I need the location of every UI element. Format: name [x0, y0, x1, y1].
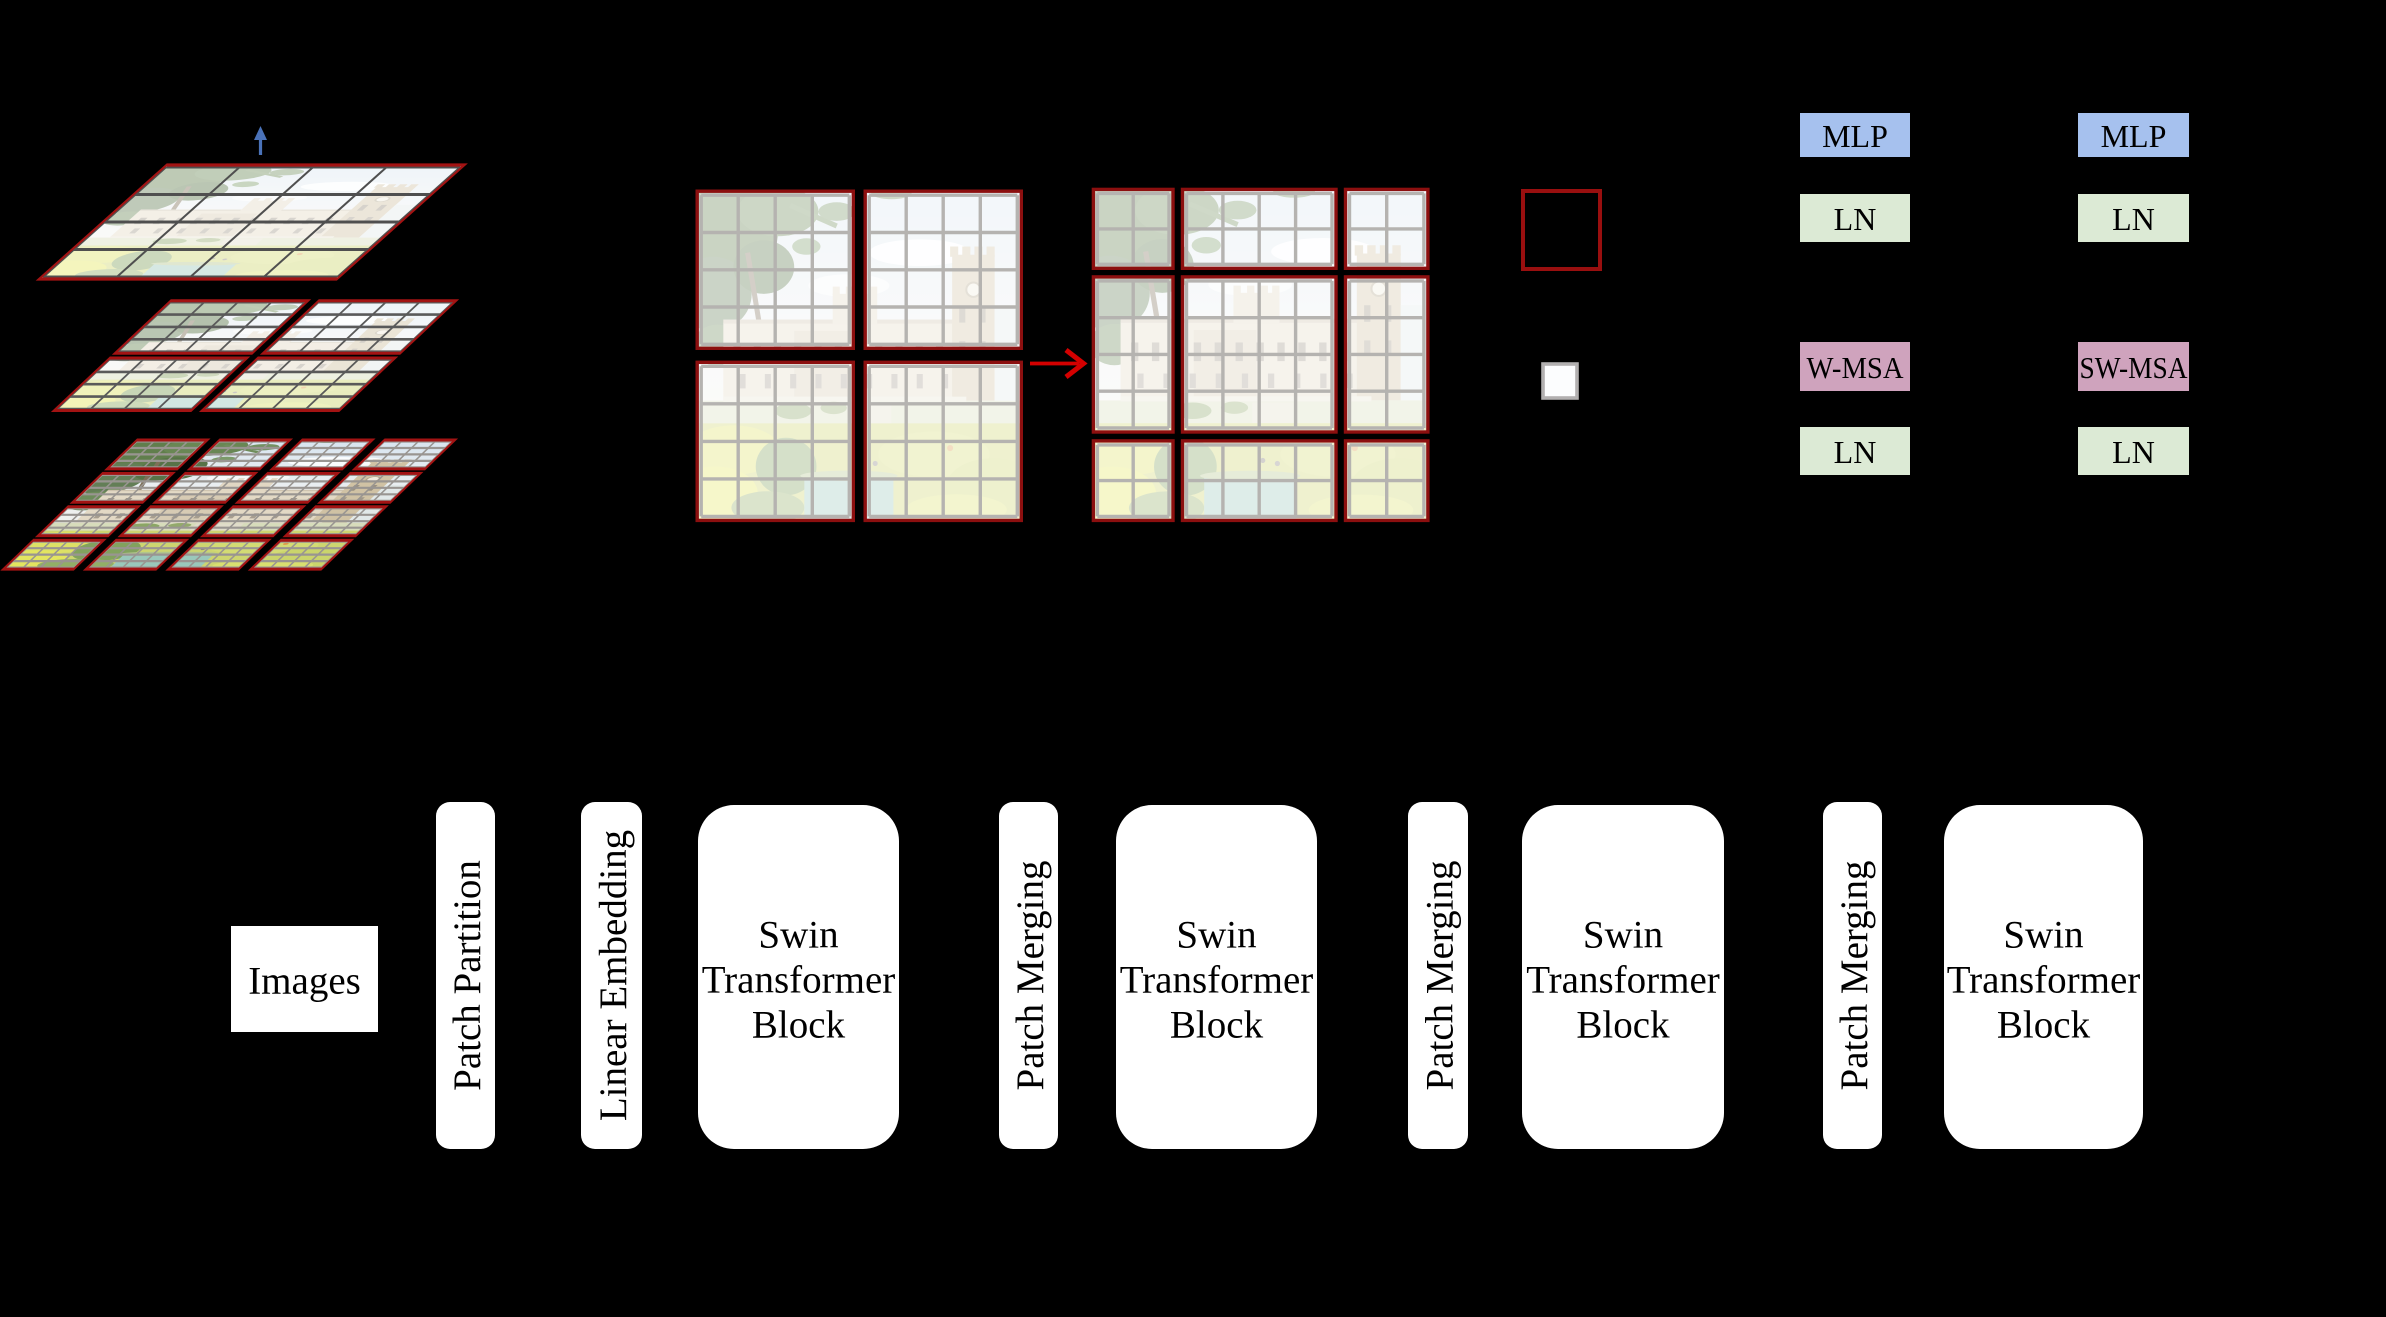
svg-text:Patch Merging: Patch Merging — [1419, 860, 1462, 1090]
svg-text:Block: Block — [752, 1004, 846, 1047]
svg-text:LN: LN — [2112, 434, 2155, 470]
svg-text:Swin: Swin — [1583, 914, 1663, 957]
svg-text:Swin: Swin — [2003, 914, 2083, 957]
svg-text:Transformer: Transformer — [1526, 959, 1720, 1002]
svg-text:Block: Block — [1170, 1004, 1264, 1047]
svg-text:Images: Images — [248, 960, 361, 1003]
svg-text:Block: Block — [1576, 1004, 1670, 1047]
svg-text:Patch Merging: Patch Merging — [1009, 860, 1052, 1090]
svg-text:MLP: MLP — [1822, 118, 1888, 154]
svg-text:Transformer: Transformer — [1947, 959, 2141, 1002]
svg-text:LN: LN — [1834, 434, 1877, 470]
svg-text:Linear Embedding: Linear Embedding — [592, 830, 635, 1121]
svg-text:W-MSA: W-MSA — [1807, 350, 1905, 385]
svg-text:Block: Block — [1997, 1004, 2091, 1047]
svg-text:MLP: MLP — [2101, 118, 2167, 154]
svg-text:Patch Partition: Patch Partition — [446, 860, 489, 1091]
svg-text:Swin: Swin — [758, 914, 838, 957]
svg-text:Swin: Swin — [1176, 914, 1256, 957]
svg-text:Transformer: Transformer — [1120, 959, 1314, 1002]
svg-text:LN: LN — [2112, 201, 2155, 237]
svg-text:SW-MSA: SW-MSA — [2080, 350, 2189, 385]
svg-text:LN: LN — [1834, 201, 1877, 237]
svg-text:Transformer: Transformer — [702, 959, 896, 1002]
svg-text:Patch Merging: Patch Merging — [1833, 860, 1876, 1090]
